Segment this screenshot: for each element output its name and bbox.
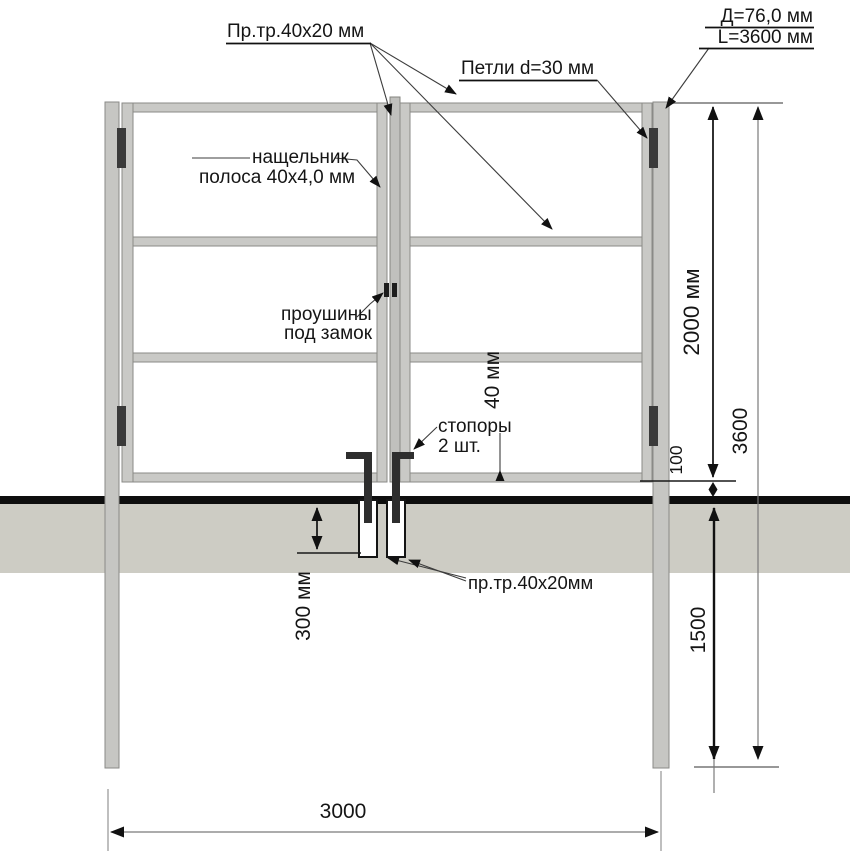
left-leaf-rail-3 bbox=[122, 353, 387, 362]
lock-lug-left bbox=[384, 283, 389, 297]
left-leaf-top-rail bbox=[122, 103, 387, 112]
right-leaf-rail-3 bbox=[400, 353, 652, 362]
ground-band bbox=[0, 504, 850, 573]
callout-lock-lugs: проушины под замок bbox=[281, 304, 373, 344]
label-cover-strip-2: полоса 40х4,0 мм bbox=[199, 167, 355, 188]
label-lock-lugs-2: под замок bbox=[284, 323, 373, 344]
lock-lug-right bbox=[392, 283, 397, 297]
right-leaf-bottom-rail bbox=[400, 473, 652, 482]
stopper-left-rod bbox=[364, 452, 372, 523]
label-post-length: L=3600 мм bbox=[718, 27, 813, 48]
label-stoppers-1: стопоры bbox=[438, 416, 512, 437]
hinge-left-bottom bbox=[117, 406, 126, 446]
label-lock-lugs-1: проушины bbox=[281, 304, 372, 325]
label-profile-tube-top: Пр.тр.40х20 мм bbox=[227, 21, 364, 42]
right-leaf-top-rail bbox=[400, 103, 652, 112]
stopper-right-rod bbox=[392, 452, 400, 523]
label-stoppers-2: 2 шт. bbox=[438, 436, 481, 457]
dim-label-2000: 2000 мм bbox=[679, 268, 704, 355]
dim-label-100: 100 bbox=[666, 445, 686, 474]
label-cover-strip-1: нащельник bbox=[252, 147, 350, 168]
right-leaf-rail-2 bbox=[400, 237, 652, 246]
hinge-left-top bbox=[117, 128, 126, 168]
hinge-right-bottom bbox=[649, 406, 658, 446]
left-post bbox=[105, 102, 119, 768]
label-hinges: Петли d=30 мм bbox=[461, 58, 594, 79]
right-leaf-left-stile bbox=[400, 103, 410, 482]
hinge-right-top bbox=[649, 128, 658, 168]
callout-hinges: Петли d=30 мм bbox=[459, 58, 597, 81]
ground-surface-line bbox=[0, 496, 850, 504]
label-profile-tube-bottom: пр.тр.40х20мм bbox=[468, 572, 593, 593]
dim-label-3000: 3000 bbox=[320, 800, 367, 823]
dim-label-3600: 3600 bbox=[729, 408, 752, 455]
left-leaf-rail-2 bbox=[122, 237, 387, 246]
left-leaf-bottom-rail bbox=[122, 473, 387, 482]
dim-label-1500: 1500 bbox=[687, 607, 710, 654]
label-post-diameter: Д=76,0 мм bbox=[721, 6, 813, 27]
gate-drawing-canvas: 2000 мм 100 3600 1500 300 мм 40 мм 3000 bbox=[0, 0, 850, 852]
dim-label-300: 300 мм bbox=[292, 571, 315, 641]
callout-profile-tube-top: Пр.тр.40х20 мм bbox=[226, 21, 371, 44]
dim-label-40: 40 мм bbox=[481, 351, 504, 409]
